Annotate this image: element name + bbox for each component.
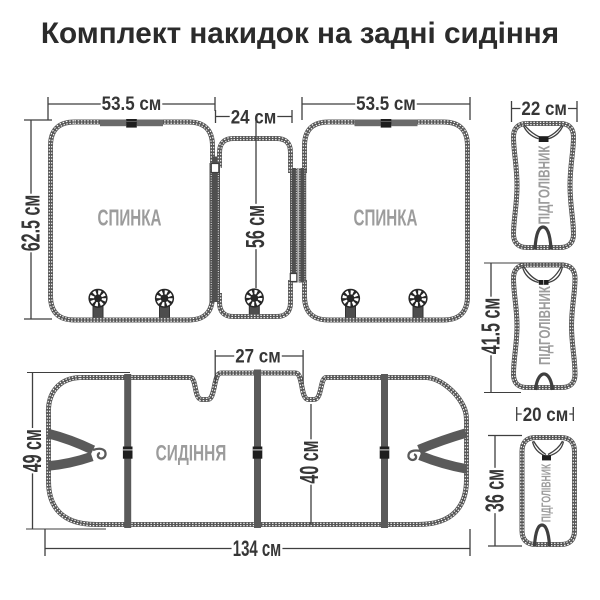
svg-text:24 см: 24 см <box>231 105 277 127</box>
svg-text:53.5 см: 53.5 см <box>356 92 416 114</box>
svg-text:27 см: 27 см <box>235 344 281 366</box>
svg-text:ПІДГОЛІВНИК: ПІДГОЛІВНИК <box>535 145 553 224</box>
svg-text:СПИНКА: СПИНКА <box>354 205 418 231</box>
svg-text:ПІДГОЛІВНИК: ПІДГОЛІВНИК <box>540 464 554 523</box>
svg-text:62.5 см: 62.5 см <box>17 195 46 252</box>
svg-text:ПІДГОЛІВНИК: ПІДГОЛІВНИК <box>535 286 553 365</box>
svg-text:41.5 см: 41.5 см <box>477 298 506 355</box>
svg-text:56 см: 56 см <box>241 205 270 248</box>
svg-text:134 см: 134 см <box>233 536 281 561</box>
svg-text:СПИНКА: СПИНКА <box>98 205 162 231</box>
svg-text:36 см: 36 см <box>481 469 510 512</box>
svg-text:СИДІННЯ: СИДІННЯ <box>156 442 227 466</box>
svg-text:22 см: 22 см <box>521 97 567 119</box>
svg-text:53.5 см: 53.5 см <box>102 92 162 114</box>
svg-text:40 см: 40 см <box>295 440 324 483</box>
svg-text:20 см: 20 см <box>523 403 569 425</box>
svg-text:49 см: 49 см <box>18 429 47 472</box>
